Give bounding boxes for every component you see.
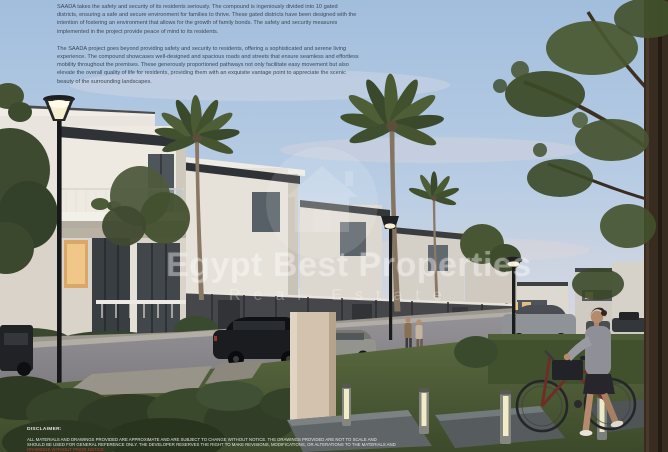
watermark-brand: Egypt Best Properties	[166, 246, 532, 285]
intro-paragraph-2: The SAADA project goes beyond providing …	[57, 45, 359, 86]
balcony-plant	[91, 198, 109, 210]
disclaimer: DISCLAIMER: ALL MATERIALS AND DRAWINGS P…	[27, 427, 396, 452]
bike-basket	[552, 360, 583, 380]
bollard-light	[419, 388, 429, 434]
intro-text: SAADA takes the safety and security of i…	[57, 3, 359, 95]
sneaker	[580, 430, 593, 436]
parked-van-left	[0, 325, 33, 376]
watermark-logo house-circle-icon	[266, 147, 378, 259]
brochure-page: SAADA takes the safety and security of i…	[0, 0, 668, 452]
entry-pillar	[290, 312, 336, 424]
watermark-tagline: Real Estate	[229, 287, 455, 305]
disclaimer-line-highlight: DRAWINGS WITHOUT PRIOR NOTICE.	[27, 447, 396, 452]
disclaimer-label: DISCLAIMER:	[27, 427, 396, 432]
bollard-light	[500, 390, 511, 444]
intro-paragraph-1: SAADA takes the safety and security of i…	[57, 3, 359, 36]
lamp-glow	[385, 223, 396, 228]
bollard-light	[342, 384, 351, 426]
